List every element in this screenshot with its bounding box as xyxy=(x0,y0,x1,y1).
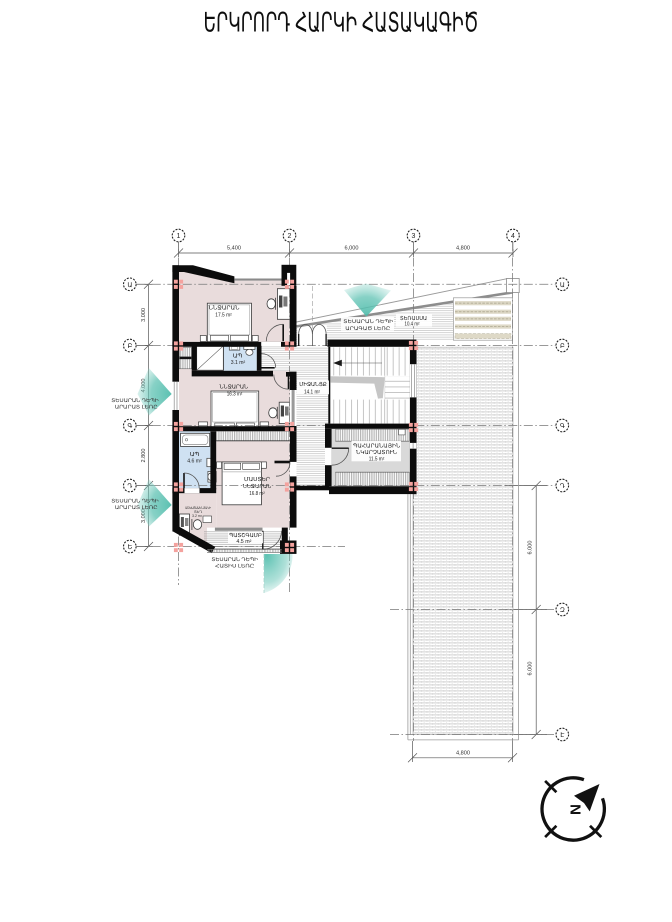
svg-text:N: N xyxy=(567,804,584,815)
svg-text:ՊԱՀԱՐԱՆԱՅԻՆ: ՊԱՀԱՐԱՆԱՅԻՆ xyxy=(353,443,402,450)
svg-text:Ա: Ա xyxy=(560,282,565,289)
svg-text:4: 4 xyxy=(511,233,515,240)
svg-text:Զ: Զ xyxy=(560,607,565,614)
svg-text:ՀԱՏԻՍ ԼԵՌԸ: ՀԱՏԻՍ ԼԵՌԸ xyxy=(215,563,255,569)
svg-text:17.5 m²: 17.5 m² xyxy=(215,312,232,318)
svg-text:ՆՆՋԱՐԱՆ: ՆՆՋԱՐԱՆ xyxy=(243,483,272,490)
svg-text:ԱՐԱՐԱՏ ԼԵՌԸ: ԱՐԱՐԱՏ ԼԵՌԸ xyxy=(115,505,158,511)
svg-text:Բ: Բ xyxy=(127,343,132,350)
svg-text:ՏԵՍԱՐԱՆ ԴԵՊԻ: ՏԵՍԱՐԱՆ ԴԵՊԻ xyxy=(111,398,159,404)
svg-text:10.4 m²: 10.4 m² xyxy=(405,321,420,327)
svg-text:Դ: Դ xyxy=(127,483,132,490)
svg-text:11.5 m²: 11.5 m² xyxy=(369,457,385,463)
svg-text:16.8 m²: 16.8 m² xyxy=(249,491,265,497)
svg-text:ԱՐԱԳԱԾ ԼԵՌԸ: ԱՐԱԳԱԾ ԼԵՌԸ xyxy=(345,326,390,332)
svg-text:Ա: Ա xyxy=(127,282,132,289)
svg-text:5,400: 5,400 xyxy=(227,246,241,252)
svg-text:ՆՆՋԱՐԱՆ: ՆՆՋԱՐԱՆ xyxy=(209,305,241,312)
svg-text:4.5 m²: 4.5 m² xyxy=(236,539,251,545)
svg-text:4,800: 4,800 xyxy=(456,750,470,756)
svg-text:3.1 m²: 3.1 m² xyxy=(231,360,246,366)
svg-text:6.000: 6.000 xyxy=(528,662,534,676)
svg-text:4.6 m²: 4.6 m² xyxy=(187,458,202,464)
svg-text:ԱՊ: ԱՊ xyxy=(190,452,200,458)
svg-text:ԱՊ: ԱՊ xyxy=(233,354,243,360)
svg-text:Գ: Գ xyxy=(560,423,565,430)
svg-text:4,800: 4,800 xyxy=(456,246,470,252)
svg-text:ՏԵՍԱՐԱՆ ԴԵՊԻ: ՏԵՍԱՐԱՆ ԴԵՊԻ xyxy=(343,319,394,325)
svg-text:Ե: Ե xyxy=(127,544,132,551)
svg-text:ՆՆՋԱՐԱՆ: ՆՆՋԱՐԱՆ xyxy=(220,383,249,390)
svg-text:ՏԵՍԱՐԱՆ ԴԵՊԻ: ՏԵՍԱՐԱՆ ԴԵՊԻ xyxy=(211,557,258,563)
svg-text:ԱՐԱՐԱՏ ԼԵՌԸ: ԱՐԱՐԱՏ ԼԵՌԸ xyxy=(115,405,158,411)
svg-text:16.3 m²: 16.3 m² xyxy=(227,392,243,398)
svg-text:ՏԵՍԱՐԱՆ ԴԵՊԻ: ՏԵՍԱՐԱՆ ԴԵՊԻ xyxy=(111,499,159,505)
svg-text:ՄԱՍՏԵՐ: ՄԱՍՏԵՐ xyxy=(244,476,270,483)
svg-text:3.2 m²: 3.2 m² xyxy=(192,514,203,518)
svg-text:Է: Է xyxy=(560,732,564,739)
svg-text:1: 1 xyxy=(177,233,181,240)
svg-text:2.800: 2.800 xyxy=(141,449,147,463)
svg-text:6.000: 6.000 xyxy=(528,541,534,555)
svg-text:3.000: 3.000 xyxy=(141,308,147,322)
svg-text:ԵՐԿՐՈՐԴ ՀԱՐԿԻ ՀԱՏԱԿԱԳԻԾ: ԵՐԿՐՈՐԴ ՀԱՐԿԻ ՀԱՏԱԿԱԳԻԾ xyxy=(204,8,479,38)
svg-text:3: 3 xyxy=(412,233,416,240)
svg-text:Բ: Բ xyxy=(560,343,565,350)
svg-text:2: 2 xyxy=(288,233,292,240)
svg-text:Գ: Գ xyxy=(127,423,132,430)
svg-text:6,000: 6,000 xyxy=(345,246,359,252)
svg-text:ՆԿԱՐՉԱՏՈՒՆ: ՆԿԱՐՉԱՏՈՒՆ xyxy=(356,449,398,456)
svg-text:ՄԻՋԱՆՑՔ: ՄԻՋԱՆՑՔ xyxy=(299,381,327,388)
svg-text:Դ: Դ xyxy=(560,483,565,490)
svg-text:14.1 m²: 14.1 m² xyxy=(304,389,320,395)
